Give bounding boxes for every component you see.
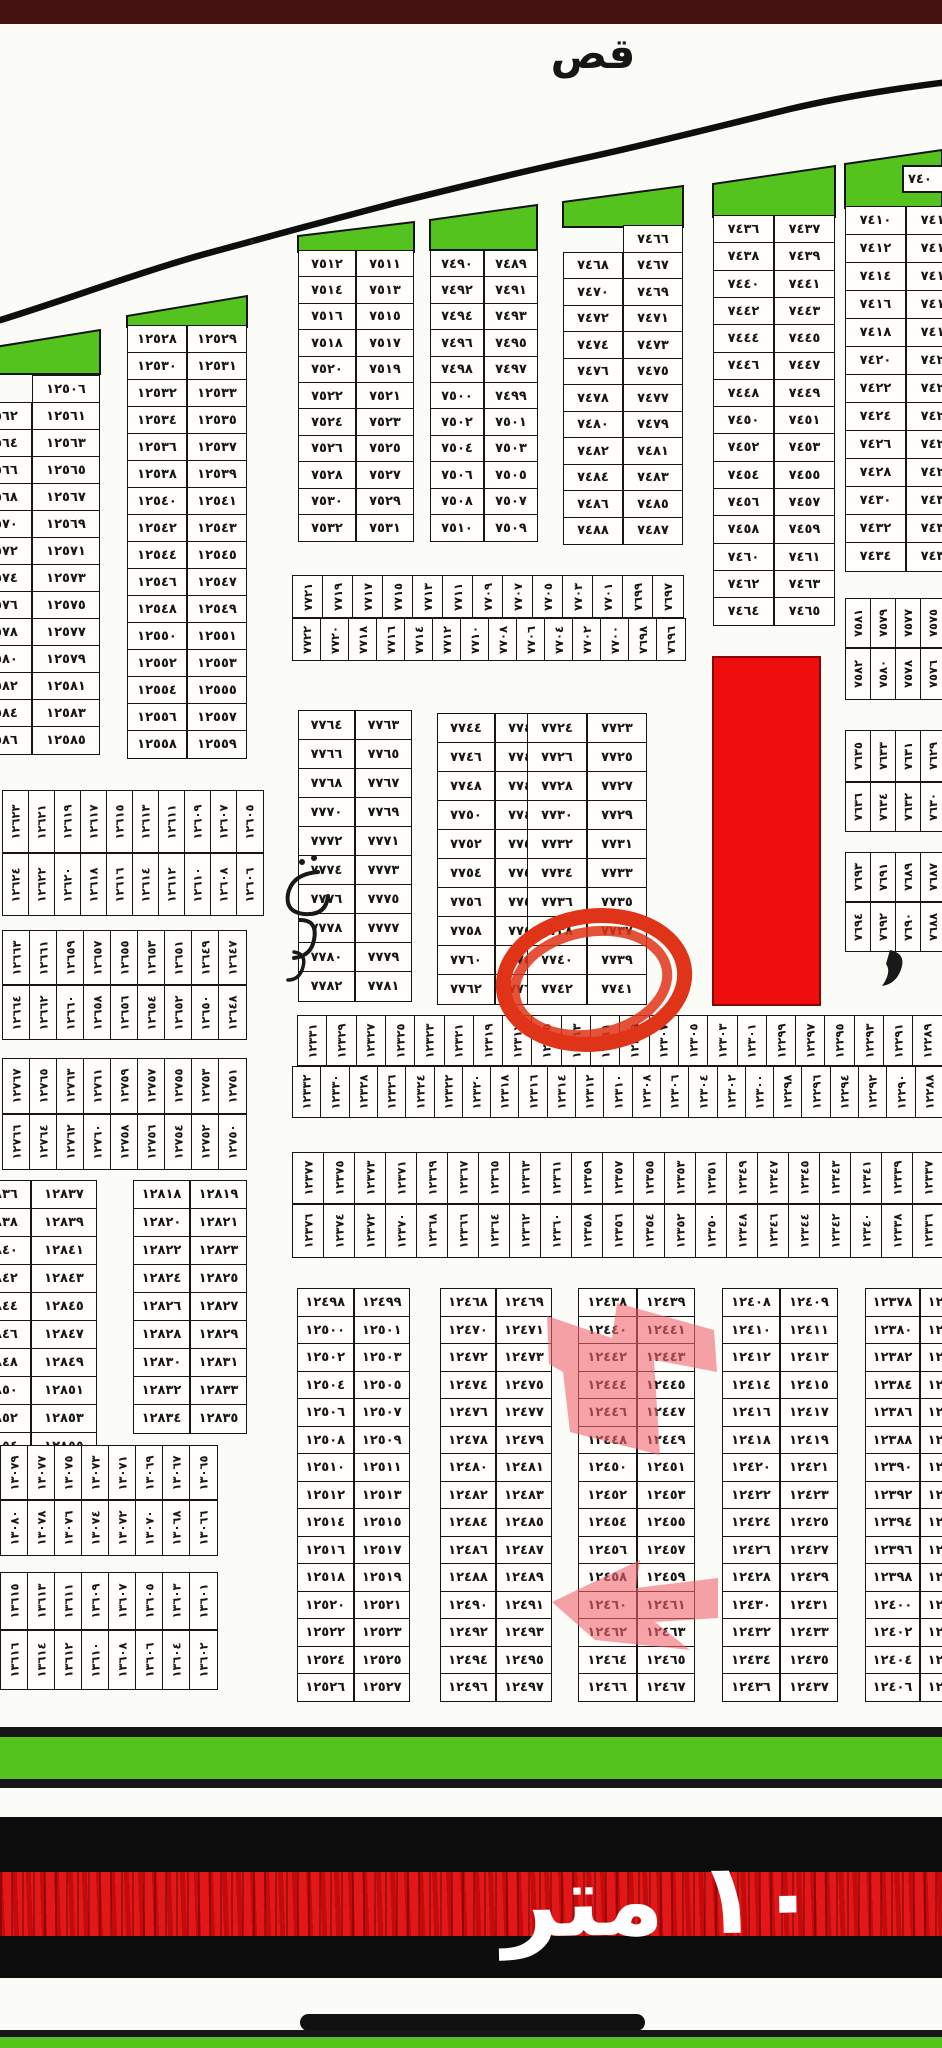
plot-cell: ١٢٥٢٢ — [297, 1618, 354, 1647]
plot-cell: ٧٤٨١ — [623, 437, 683, 465]
plot-cell: ١٢٢٩٢ — [858, 1066, 888, 1118]
plot-cell: ١٢٤٧٦ — [440, 1398, 496, 1427]
plot-cell: ١٢٥٣٧ — [187, 433, 247, 462]
plot-cell: ٧٦٩٦ — [656, 618, 686, 661]
plot-cell: ١٢٣٣٧ — [912, 1152, 942, 1204]
strip-7582: ٧٥٨٢٧٥٨٠٧٥٧٨٧٥٧٦ — [845, 648, 942, 703]
plot-cell: ٧٤١٥ — [906, 262, 942, 292]
plot-cell: ٧٥٣١ — [356, 514, 414, 542]
plot-cell: ١٢٦٦٣ — [2, 930, 31, 985]
plot-cell: ١٢٢٩٨ — [773, 1066, 803, 1118]
plot-cell: ٧٧٢٤ — [527, 713, 587, 744]
plot-cell: ٧٧٦٨ — [298, 768, 355, 799]
strip-13615: ١٣٦١٥١٣٦١٣١٣٦١١١٣٦٠٩١٣٦٠٧١٣٦٠٥١٣٦٠٣١٣٦٠١ — [0, 1572, 219, 1633]
plot-cell: ١٢٧٦٢ — [56, 1114, 85, 1170]
plot-cell: ٧٤٤٦ — [713, 352, 774, 381]
plot-cell: ١٣٠٦٥ — [189, 1445, 218, 1500]
plot-cell: ٧٤٣٣ — [906, 514, 942, 544]
plot-cell: ١٢٥٧٤ — [0, 564, 32, 593]
subdivision-plan-canvas: قص ٧٤٠ ١٠ متر ١٢٥٠٦١٢٥٦٢١٢٥٦١١٢٥٦٤١٢٥٦٣١… — [0, 0, 942, 2048]
plot-cell: ١٢٥٨١ — [32, 672, 100, 701]
plot-cell: ٧٧١٧ — [352, 575, 384, 618]
plot-cell: ٧٤٧٨ — [563, 384, 623, 412]
plot-cell: ١٢٣٩٠ — [865, 1453, 920, 1482]
plot-cell: ٧٧٦٩ — [355, 797, 412, 828]
plot-cell: ٧٧٧٢ — [298, 826, 355, 857]
plot-cell: ١٢٣٦١ — [540, 1152, 573, 1204]
plot-cell: ٧٤٧٤ — [563, 331, 623, 359]
plot-cell: ١٢٥٧٨ — [0, 618, 32, 647]
plot-cell: ١٢٣٧٢ — [354, 1204, 387, 1258]
plot-cell: ١٢٧٥٥ — [164, 1058, 193, 1114]
plot-cell: ١٢٨٤٩ — [31, 1348, 97, 1378]
plot-cell: ١٢٣٥٧ — [602, 1152, 635, 1204]
plot-cell: ١٢٣٤٤ — [788, 1204, 821, 1258]
plot-cell: ١٢٤٠٨ — [722, 1288, 780, 1317]
plot-cell-fragment: ٧٤٠ — [902, 165, 942, 193]
plot-cell: ٧٦٣٢ — [895, 782, 922, 832]
plot-cell: ١٢٤٤٣ — [637, 1343, 696, 1372]
plot-cell: ١٢٢٩٣ — [854, 1015, 885, 1066]
plot-cell: ١٢٥٢٠ — [297, 1591, 354, 1620]
plot-cell: ١٢٤٧٤ — [440, 1371, 496, 1400]
plot-cell: ١٢٨٢٩ — [190, 1320, 247, 1350]
plot-cell: ٧٥٠٩ — [484, 514, 538, 542]
plot-cell: ١٢٣٧٧ — [292, 1152, 325, 1204]
plot-cell: ١٢٤٠٧ — [920, 1673, 942, 1702]
plot-cell: ١٢٤٠٠ — [865, 1591, 920, 1620]
plot-cell: ١٢٤٨٥ — [496, 1508, 552, 1537]
plot-cell: ١٢٥٢٨ — [127, 325, 187, 354]
plot-cell: ١٢٥٠١ — [354, 1316, 411, 1345]
plot-cell: ١٣٠٧٩ — [0, 1445, 29, 1500]
plot-cell: ٧٧٤٢ — [527, 974, 587, 1005]
strip-13079: ١٣٠٧٩١٣٠٧٧١٣٠٧٥١٣٠٧٣١٣٠٧١١٣٠٦٩١٣٠٦٧١٣٠٦٥ — [0, 1445, 219, 1503]
plot-cell: ١٢٦٠٦ — [236, 853, 264, 916]
plot-cell: ٧٤٧٢ — [563, 305, 623, 333]
plot-cell: ١٢٤١٨ — [722, 1426, 780, 1455]
plot-cell: ١٢٥٤١ — [187, 487, 247, 516]
plot-cell: ١٢٢٩٦ — [801, 1066, 831, 1118]
plot-cell: ١٢٤٧٣ — [496, 1343, 552, 1372]
plot-cell: ٧٧٠٥ — [532, 575, 564, 618]
plot-cell: ١٢٦١٧ — [80, 790, 108, 853]
plot-cell: ١٢٨٢٨ — [133, 1320, 190, 1350]
plot-cell: ١٢٣١٤ — [547, 1066, 577, 1118]
plot-cell: ١٣٦٠١ — [189, 1572, 218, 1630]
block-12498: ١٢٤٩٨١٢٤٩٩١٢٥٠٠١٢٥٠١١٢٥٠٢١٢٥٠٣١٢٥٠٤١٢٥٠٥… — [297, 1288, 414, 1705]
plot-cell: ١٢٤٣٨ — [578, 1288, 637, 1317]
plot-cell: ١٢٦٥١ — [164, 930, 193, 985]
plot-cell: ١٢٤٩٦ — [440, 1673, 496, 1702]
top-maroon-bar — [0, 0, 942, 24]
plot-cell: ١٢٤٧٢ — [440, 1343, 496, 1372]
plot-cell: ١٢٤٩٠ — [440, 1591, 496, 1620]
plot-cell: ٧٥١١ — [356, 250, 414, 278]
plot-cell: ١٢٨٤٠ — [0, 1236, 31, 1266]
plot-cell: ١٢٣٨٦ — [865, 1398, 920, 1427]
strip-12766: ١٢٧٦٦١٢٧٦٤١٢٧٦٢١٢٧٦٠١٢٧٥٨١٢٧٥٦١٢٧٥٤١٢٧٥٢… — [2, 1114, 248, 1173]
block-12408: ١٢٤٠٨١٢٤٠٩١٢٤١٠١٢٤١١١٢٤١٢١٢٤١٣١٢٤١٤١٢٤١٥… — [722, 1288, 842, 1705]
plot-cell: ٧٤٩١ — [484, 276, 538, 304]
plot-cell: ١٢٨٣٣ — [190, 1376, 247, 1406]
plot-cell: ٧٥٠١ — [484, 408, 538, 436]
plot-cell: ٧٧٧٧ — [355, 913, 412, 944]
plot-cell: ١٢٨٣٤ — [133, 1404, 190, 1434]
plot-cell: ٧٧٧٣ — [355, 855, 412, 886]
plot-cell: ١٣٠٧٠ — [135, 1500, 164, 1556]
plot-cell: ٧٧٦٥ — [355, 739, 412, 770]
plot-cell: ١٢٥٠٧ — [354, 1398, 411, 1427]
plot-cell: ١٣٦١٠ — [81, 1630, 110, 1690]
plot-cell: ٧٤٩٣ — [484, 303, 538, 331]
plot-cell: ١٢٤٢٤ — [722, 1508, 780, 1537]
plot-cell: ٧٤٦٠ — [713, 543, 774, 572]
plot-cell: ٧٧١٠ — [460, 618, 490, 661]
plot-cell: ١٣٦٠٦ — [135, 1630, 164, 1690]
plot-cell: ٧٤٤٧ — [774, 352, 835, 381]
plot-cell: ٧٥٢١ — [356, 382, 414, 410]
plot-cell: ١٢٣١٨ — [490, 1066, 520, 1118]
plot-cell: ١٢٤٤٨ — [578, 1426, 637, 1455]
bottom-bar — [300, 2014, 645, 2031]
plot-cell: ١٢٣٦٥ — [478, 1152, 511, 1204]
plot-cell: ١٢٤٣٥ — [780, 1646, 838, 1675]
plot-cell: ١٢٣٥٩ — [571, 1152, 604, 1204]
plot-cell: ١٢٧٥٣ — [191, 1058, 220, 1114]
plot-cell: ١٢٣١٣ — [561, 1015, 592, 1066]
plot-cell: ٧٥١٥ — [356, 303, 414, 331]
plot-cell: ٧٦٨٧ — [920, 852, 942, 902]
plot-cell: ٧٤٣١ — [906, 486, 942, 516]
plot-cell: ١٢٤٥٢ — [578, 1481, 637, 1510]
plot-cell: ٧٤٢١ — [906, 346, 942, 376]
plot-cell: ١٢٦٠٧ — [210, 790, 238, 853]
plot-cell: ٧٤٤٢ — [713, 297, 774, 326]
strip-7635: ٧٦٣٥٧٦٣٣٧٦٣١٧٦٢٩ — [845, 730, 942, 785]
plot-cell: ١٢٥٧٩ — [32, 645, 100, 674]
plot-cell: ١٣٠٦٨ — [162, 1500, 191, 1556]
plot-cell: ٧٤٥٣ — [774, 433, 835, 462]
block-12836: ١٢٨٣٦١٢٨٣٧١٢٨٣٨١٢٨٣٩١٢٨٤٠١٢٨٤١١٢٨٤٢١٢٨٤٣… — [0, 1180, 97, 1464]
plot-cell: ١٢٣٢٧ — [356, 1015, 387, 1066]
plot-cell: ١٢٧٥٤ — [164, 1114, 193, 1170]
plot-cell: ١٢٦٦١ — [29, 930, 58, 985]
plot-cell: ٧٥١٨ — [298, 329, 356, 357]
block-7410: ٧٤١٠٧٤١١٧٤١٢٧٤١٣٧٤١٤٧٤١٥٧٤١٦٧٤١٧٧٤١٨٧٤١٩… — [845, 206, 942, 574]
plot-cell: ٧٧٨٠ — [298, 942, 355, 973]
strip-12332: ١٢٣٣٢١٢٣٣٠١٢٣٢٨١٢٣٢٦١٢٣٢٤١٢٣٢٢١٢٣٢٠١٢٣١٨… — [292, 1066, 942, 1121]
plot-cell: ٧٤٨٠ — [563, 411, 623, 439]
plot-cell: ٧٤٥٩ — [774, 515, 835, 544]
plot-cell: ١٢٦١٨ — [80, 853, 108, 916]
plot-cell: ١٢٨٣٦ — [0, 1180, 31, 1210]
plot-cell: ١٢٣٥١ — [695, 1152, 728, 1204]
plot-cell: ١٢٨٥٠ — [0, 1376, 31, 1406]
plot-cell: ٧٤٧٧ — [623, 384, 683, 412]
plot-cell: ٧٦٢٩ — [920, 730, 942, 782]
plot-cell: ٧٧١٣ — [412, 575, 444, 618]
plot-cell: ١٢٤٢٧ — [780, 1536, 838, 1565]
plot-cell: ١٢٤١٤ — [722, 1371, 780, 1400]
plot-cell: ٧٤٩٠ — [430, 250, 484, 278]
plot-cell: ١٢٥٤٣ — [187, 514, 247, 543]
plot-cell: ١٢٦٥٣ — [137, 930, 166, 985]
plot-cell: ٧٥٧٨ — [895, 648, 922, 700]
plot-cell: ٧٧٠٣ — [562, 575, 594, 618]
block-7723: ٧٧٢٤٧٧٢٣٧٧٢٦٧٧٢٥٧٧٢٨٧٧٢٧٧٧٣٠٧٧٢٩٧٧٣٢٧٧٣١… — [527, 713, 651, 1007]
plot-cell: ١٢٤٨١ — [496, 1453, 552, 1482]
plot-cell: ٧٤٦٢ — [713, 570, 774, 599]
plot-cell: ٧٧١٨ — [348, 618, 378, 661]
plot-cell: ١٢٨١٩ — [190, 1180, 247, 1210]
plot-cell: ١٢٦٤٩ — [191, 930, 220, 985]
plot-cell: ٧٤٣٤ — [845, 542, 906, 572]
plot-cell: ٧٥٧٧ — [895, 598, 922, 648]
plot-cell: ١٢٥٦٧ — [32, 483, 100, 512]
plot-cell: ٧٦٩٤ — [845, 902, 872, 952]
plot-cell: ٧٥٠٥ — [484, 461, 538, 489]
plot-cell: ٧٤٦٤ — [713, 597, 774, 626]
plot-cell: ١٢٥٧٧ — [32, 618, 100, 647]
plot-cell: ٧٧٠٢ — [572, 618, 602, 661]
plot-cell: ١٢٦٥٢ — [164, 985, 193, 1040]
plot-cell: ١٢٤٥٣ — [637, 1481, 696, 1510]
plot-cell: ٧٧١١ — [442, 575, 474, 618]
plot-cell: ٧٦٩٣ — [845, 852, 872, 902]
plot-cell: ١٢٣٥٥ — [633, 1152, 666, 1204]
plot-cell: ١٢٥٣١ — [187, 352, 247, 381]
plot-cell: ٧٤٩٢ — [430, 276, 484, 304]
plot-cell: ٧٤٢٧ — [906, 430, 942, 460]
plot-cell: ٧٤٤٤ — [713, 324, 774, 353]
plot-cell: ١٢٨٢٣ — [190, 1236, 247, 1266]
plot-cell: ٧٦٣٠ — [920, 782, 942, 832]
plot-cell: ١٢٥٦٣ — [32, 429, 100, 458]
plot-cell: ١٢٤٥٠ — [578, 1453, 637, 1482]
plot-cell: ١٢٤٠٢ — [865, 1618, 920, 1647]
plot-cell: ٧٤٦١ — [774, 543, 835, 572]
plot-cell: ١٢٣٠٦ — [660, 1066, 690, 1118]
plot-cell: ٧٦٣٥ — [845, 730, 872, 782]
plot-cell: ١٢٣٠٨ — [632, 1066, 662, 1118]
plot-cell: ١٢٣٩٥ — [920, 1508, 942, 1537]
plot-cell: ٧٧٠٤ — [544, 618, 574, 661]
plot-cell: ١٢٤٨٨ — [440, 1563, 496, 1592]
plot-cell: ١٢٧٥٧ — [137, 1058, 166, 1114]
plot-cell: ١٢٤٥٦ — [578, 1536, 637, 1565]
block-12528: ١٢٥٢٨١٢٥٢٩١٢٥٣٠١٢٥٣١١٢٥٣٢١٢٥٣٣١٢٥٣٤١٢٥٣٥… — [127, 325, 251, 761]
plot-cell: ٧٤١٠ — [845, 206, 906, 236]
plot-cell: ١٢٥٣٦ — [127, 433, 187, 462]
plot-cell: ١٢٣١٧ — [502, 1015, 533, 1066]
plot-cell: ٧٤٧٦ — [563, 358, 623, 386]
plot-cell: ١٢٤٠١ — [920, 1591, 942, 1620]
plot-cell: ١٣٦٠٤ — [162, 1630, 191, 1690]
plot-cell: ١٢٦١٢ — [158, 853, 186, 916]
plot-cell: ١٢٤١٢ — [722, 1343, 780, 1372]
plot-cell: ١٢٥٢٦ — [297, 1673, 354, 1702]
plot-cell: ١٢٨٢٥ — [190, 1264, 247, 1294]
plot-cell: ٧٤٩٥ — [484, 329, 538, 357]
plot-cell: ١٢٤٥٥ — [637, 1508, 696, 1537]
plot-cell: ١٢٤٤٦ — [578, 1398, 637, 1427]
plot-cell: ٧٧٤١ — [587, 974, 647, 1005]
plot-cell: ١٢٣٨٨ — [865, 1426, 920, 1455]
plot-cell: ٧٤٨٦ — [563, 490, 623, 518]
plot-cell: ٧٧٥٨ — [437, 916, 495, 947]
plot-cell: ١٢٣٠٩ — [619, 1015, 650, 1066]
plot-cell: ١٢٥٠٦ — [32, 375, 100, 404]
plot-cell: ١٢٥١٢ — [297, 1481, 354, 1510]
plot-cell: ١٢٥٦٢ — [0, 402, 32, 431]
plot-cell: ٧٤١٦ — [845, 290, 906, 320]
plot-cell: ٧٤١٧ — [906, 290, 942, 320]
plot-cell: ١٢٥٨٣ — [32, 699, 100, 728]
plot-cell: ١٣٠٧٥ — [54, 1445, 83, 1500]
plot-cell: ١٢٦٢٣ — [2, 790, 30, 853]
plot-cell: ١٢٥٣٥ — [187, 406, 247, 435]
plot-cell: ١٢٣٧٠ — [385, 1204, 418, 1258]
plot-cell: ٧٧٣١ — [587, 829, 647, 860]
block-12818: ١٢٨١٨١٢٨١٩١٢٨٢٠١٢٨٢١١٢٨٢٢١٢٨٢٣١٢٨٢٤١٢٨٢٥… — [133, 1180, 251, 1436]
plot-cell: ٧٧٤٦ — [437, 742, 495, 773]
plot-cell: ١٢٨٥٢ — [0, 1404, 31, 1434]
plot-cell: ٧٤٦٦ — [623, 225, 683, 253]
plot-cell: ١٢٣١٩ — [473, 1015, 504, 1066]
plot-cell: ٧٦٩٩ — [622, 575, 654, 618]
strip-12624: ١٢٦٢٤١٢٦٢٢١٢٦٢٠١٢٦١٨١٢٦١٦١٢٦١٤١٢٦١٢١٢٦١٠… — [2, 853, 265, 919]
plot-cell: ٧٤٣٢ — [845, 514, 906, 544]
plot-cell: ٧٦٩٠ — [895, 902, 922, 952]
plot-cell: ٧٤٩٧ — [484, 356, 538, 384]
road-edge-line — [0, 2030, 942, 2037]
plot-cell: ٧٤٥٤ — [713, 461, 774, 490]
plot-cell: ١٢٣٥٢ — [664, 1204, 697, 1258]
plot-cell: ١٢٥٨٠ — [0, 645, 32, 674]
plot-cell: ١٢٤١١ — [780, 1316, 838, 1345]
plot-cell: ٧٧١٦ — [376, 618, 406, 661]
plot-cell: ٧٧٣٤ — [527, 858, 587, 889]
plot-cell: ٧٤٨٣ — [623, 464, 683, 492]
plot-cell: ١٣٠٧٢ — [108, 1500, 137, 1556]
plot-cell: ١٢٤٤٢ — [578, 1343, 637, 1372]
plot-cell: ١٢٤٥٧ — [637, 1536, 696, 1565]
plot-cell: ٧٤١٩ — [906, 318, 942, 348]
plot-cell: ١٢٧٦٧ — [2, 1058, 31, 1114]
plot-cell: ١٢٨٤٨ — [0, 1348, 31, 1378]
plot-cell: ١٣٠٧٦ — [54, 1500, 83, 1556]
plot-cell: ١٢٥١٣ — [354, 1481, 411, 1510]
plot-cell: ١٣٠٧٨ — [27, 1500, 56, 1556]
plot-cell: ١٢٣٦٩ — [416, 1152, 449, 1204]
plot-cell: ١٢٣٢٥ — [385, 1015, 416, 1066]
plot-cell: ١٢٤١٧ — [780, 1398, 838, 1427]
plot-cell: ١٢٤٢٩ — [780, 1563, 838, 1592]
block-12561: ١٢٥٠٦١٢٥٦٢١٢٥٦١١٢٥٦٤١٢٥٦٣١٢٥٦٦١٢٥٦٥١٢٥٦٨… — [0, 375, 102, 757]
plot-cell: ١٢٤٩٩ — [354, 1288, 411, 1317]
plot-cell: ٧٤٣٨ — [713, 242, 774, 271]
plot-cell: ١٢٤٢٣ — [780, 1481, 838, 1510]
plot-cell: ٧٧٢٣ — [587, 713, 647, 744]
plot-cell: ٧٤٤١ — [774, 270, 835, 299]
plot-cell: ١٢٨٤٤ — [0, 1292, 31, 1322]
plot-cell: ٧٥١٧ — [356, 329, 414, 357]
plot-cell: ١٢٥٦٩ — [32, 510, 100, 539]
plot-cell: ١٢٥٦١ — [32, 402, 100, 431]
plot-cell: ٧٥٧٥ — [920, 598, 942, 648]
plot-cell: ١٢٤١٥ — [780, 1371, 838, 1400]
plot-cell: ١٢٣٤٧ — [757, 1152, 790, 1204]
plot-cell: ١٢٤٨٣ — [496, 1481, 552, 1510]
strip-7721: ٧٧٢١٧٧١٩٧٧١٧٧٧١٥٧٧١٣٧٧١١٧٧٠٩٧٧٠٧٧٧٠٥٧٧٠٣… — [292, 575, 685, 621]
plot-cell: ١٢٥٣٨ — [127, 460, 187, 489]
plot-cell: ١٣٦٠٣ — [162, 1572, 191, 1630]
plot-cell: ١٢٤٦١ — [637, 1591, 696, 1620]
plot-cell: ٧٧٥٢ — [437, 829, 495, 860]
plot-cell: ١٢٣٦٠ — [540, 1204, 573, 1258]
plot-cell: ٧٧٥٠ — [437, 800, 495, 831]
plot-cell: ٧٤٥٠ — [713, 406, 774, 435]
plot-cell: ٧٦٣٦ — [845, 782, 872, 832]
plot-cell: ١٢٨٣٨ — [0, 1208, 31, 1238]
plot-cell: ١٢٨٤٦ — [0, 1320, 31, 1350]
plot-cell: ١٢٥٤٥ — [187, 541, 247, 570]
plot-cell: ١٢٧٥٢ — [191, 1114, 220, 1170]
plot-cell: ٧٤٥٨ — [713, 515, 774, 544]
strip-12331: ١٢٣٣١١٢٣٢٩١٢٣٢٧١٢٣٢٥١٢٣٢٣١٢٣٢١١٢٣١٩١٢٣١٧… — [297, 1015, 942, 1069]
plot-cell: ٧٤٢٤ — [845, 402, 906, 432]
plot-cell: ٧٤٦٨ — [563, 252, 623, 280]
plot-cell: ١٢٣٩١ — [920, 1453, 942, 1482]
plot-cell: ٧٦٣٤ — [870, 782, 897, 832]
plot-cell: ١٢٣٧٦ — [292, 1204, 325, 1258]
plot-cell: ١٣٦١٢ — [54, 1630, 83, 1690]
plot-cell: ١٢٨٣٠ — [133, 1348, 190, 1378]
plot-cell: ٧٤٣٩ — [774, 242, 835, 271]
plot-cell: ١٢٣٦٣ — [509, 1152, 542, 1204]
plot-cell: ١٢٧٥٩ — [110, 1058, 139, 1114]
plot-cell: ١٢٣٣٨ — [881, 1204, 914, 1258]
block-12468: ١٢٤٦٨١٢٤٦٩١٢٤٧٠١٢٤٧١١٢٤٧٢١٢٤٧٣١٢٤٧٤١٢٤٧٥… — [440, 1288, 556, 1705]
plot-cell: ١٢٦٠٥ — [236, 790, 264, 853]
plot-cell: ١٢٤٥٩ — [637, 1563, 696, 1592]
plot-cell: ٧٧٧٤ — [298, 855, 355, 886]
road-edge-line — [0, 1727, 942, 1737]
plot-cell: ٧٤٦٣ — [774, 570, 835, 599]
plot-cell: ٧٤٩٨ — [430, 356, 484, 384]
plot-cell: ١٢٥٢٤ — [297, 1646, 354, 1675]
plot-cell: ١٢٣٥٠ — [695, 1204, 728, 1258]
block-7763: ٧٧٦٤٧٧٦٣٧٧٦٦٧٧٦٥٧٧٦٨٧٧٦٧٧٧٧٠٧٧٦٩٧٧٧٢٧٧٧١… — [298, 710, 416, 1004]
strip-7694: ٧٦٩٤٧٦٩٢٧٦٩٠٧٦٨٨ — [845, 902, 942, 955]
plot-cell: ١٢٣٣٩ — [881, 1152, 914, 1204]
plot-cell: ٧٧٣٧ — [587, 916, 647, 947]
plot-cell: ١٢٧٦٣ — [56, 1058, 85, 1114]
plot-cell: ١٢٤٧٧ — [496, 1398, 552, 1427]
plot-cell: ١٢٨٤٧ — [31, 1320, 97, 1350]
plot-cell: ١٢٥٢٧ — [354, 1673, 411, 1702]
plot-cell: ٧٧٠٨ — [488, 618, 518, 661]
plot-cell: ١٢٥٢٩ — [187, 325, 247, 354]
plot-cell: ٧٥١٠ — [430, 514, 484, 542]
plot-cell: ١٢٥٧٥ — [32, 591, 100, 620]
plot-cell: ١٣٦٠٨ — [108, 1630, 137, 1690]
plot-cell: ٧٤٩٤ — [430, 303, 484, 331]
plot-cell: ٧٧١٢ — [432, 618, 462, 661]
plot-cell: ١٢٤١٩ — [780, 1426, 838, 1455]
plot-cell: ٧٧٧٩ — [355, 942, 412, 973]
